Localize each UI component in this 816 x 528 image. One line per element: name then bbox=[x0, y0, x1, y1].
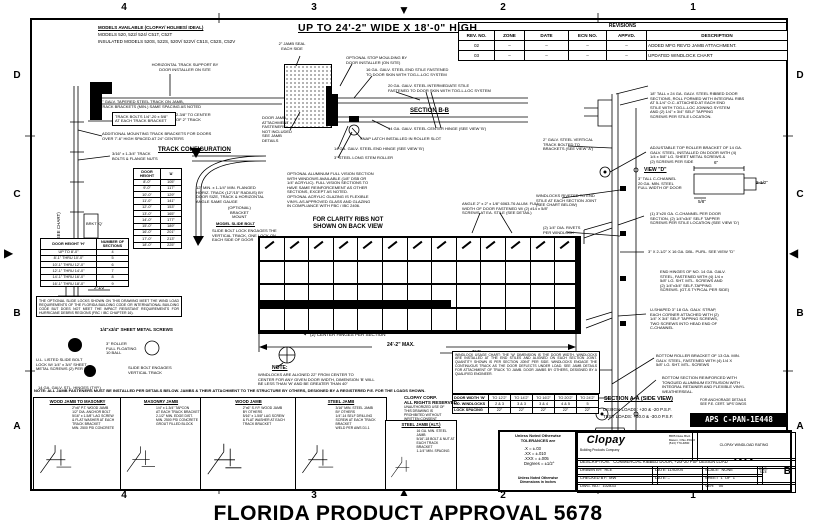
door-panel-cell bbox=[358, 309, 383, 331]
table-cell: 22" bbox=[577, 407, 599, 413]
door-panel-cell bbox=[432, 309, 457, 331]
door-panel-cell bbox=[285, 238, 310, 260]
view-d-width-dim: 6" bbox=[714, 160, 718, 165]
panel-notes: 2"x6" S.Y.P. WOOD JAMB BY OTHERS 5/16" x… bbox=[243, 407, 295, 427]
rib-mark bbox=[437, 241, 447, 249]
door-panel-cell bbox=[334, 238, 359, 260]
aa-purlin-note: 3" X 2-1/2" X 16 GA. DBL. PURL. SEE VIEW… bbox=[648, 250, 735, 255]
rib-mark bbox=[486, 241, 496, 249]
door-panel-cell bbox=[285, 262, 310, 284]
grid-row-label: A bbox=[10, 421, 24, 432]
door-panel-cell bbox=[457, 309, 482, 331]
table-header-cell: DESCRIPTION bbox=[647, 31, 788, 41]
door-panel-cell bbox=[506, 238, 531, 260]
glazing-note: OPTIONAL ALUMINUM FULL VISION SECTION WI… bbox=[287, 172, 389, 209]
bb-snap-latch-note: SNAP LATCH INSTALLED IN ROLLER SLOT bbox=[360, 137, 441, 142]
grid-row-label: D bbox=[10, 70, 24, 81]
grid-row-label: C bbox=[793, 189, 807, 200]
copyright-sub: UNAUTHORIZED USE OF THIS DRAWING IS PROH… bbox=[404, 406, 445, 422]
windload-cell: CLOPAY WINDLOAD RATING W4 bbox=[692, 432, 796, 461]
windlock-note-title: NOTE: bbox=[272, 366, 288, 372]
width-dimension: 24'-2" MAX. bbox=[385, 343, 416, 349]
tolerances-values: .X = ±.03 .XX = ±.010 .XXX = ±.005 Degre… bbox=[524, 446, 554, 466]
grid-col-label: 4 bbox=[117, 2, 131, 13]
door-panel-cell bbox=[531, 262, 556, 284]
aa-sections-note: 18" TALL x 24 GA. GALV. STEEL RIBBED DOO… bbox=[650, 92, 744, 120]
door-panel-cell bbox=[408, 238, 433, 260]
rib-mark bbox=[363, 241, 373, 249]
table-cell: – bbox=[569, 51, 607, 61]
view-d-label: VIEW "D" bbox=[644, 168, 667, 174]
revisions-table: REV. NO.ZONEDATEECN NO.APPVD.DESCRIPTION… bbox=[458, 30, 788, 61]
table-header-cell: APPVD. bbox=[607, 31, 647, 41]
rib-mark bbox=[314, 241, 324, 249]
table-cell: 22" bbox=[489, 407, 511, 413]
door-panel-cell bbox=[457, 238, 482, 260]
table-cell: – bbox=[525, 51, 569, 61]
table-cell: 22" bbox=[533, 407, 555, 413]
door-panel-cell bbox=[531, 309, 556, 331]
door-panel-cell bbox=[334, 262, 359, 284]
slide-lock-note: U.L. LISTED SLIDE BOLT LOCK W/ 1/4" x 3/… bbox=[36, 358, 95, 372]
table-cell: 22" bbox=[555, 407, 577, 413]
panel-notes: 1/4" x 1-3/4" TAPCON AT EACH TRACK BRACK… bbox=[156, 407, 200, 427]
table-header-cell: ECN NO. bbox=[569, 31, 607, 41]
rib-mark bbox=[388, 241, 398, 249]
door-panel-cell bbox=[506, 285, 531, 307]
grid-col-label: 1 bbox=[686, 2, 700, 13]
models-line: INSULATED MODELS 520S, 522S, 520V/ 522V/… bbox=[98, 39, 235, 44]
keeper-note: SLIDE BOLT ENGAGES VERTICAL TRACK bbox=[128, 366, 172, 375]
track-config-title: TRACK CONFIGURATION bbox=[158, 147, 231, 154]
table-header-cell: DOOR HEIGHT bbox=[134, 169, 161, 180]
rib-mark bbox=[338, 241, 348, 249]
bracket-dim: 2-3/8" TO CENTER OF 2" TRACK bbox=[176, 113, 211, 122]
revisions-block: REVISIONS REV. NO.ZONEDATEECN NO.APPVD.D… bbox=[458, 22, 787, 61]
door-panel-cell bbox=[432, 238, 457, 260]
lock-bar bbox=[260, 300, 451, 307]
door-panel-cell bbox=[506, 309, 531, 331]
panel-notes: 3/16" MIN. STEEL JAMB BY OTHERS 1/4"-14 … bbox=[336, 407, 386, 430]
detail-sketch bbox=[36, 431, 80, 487]
aa-bottom-seal-note: BOTTOM SECTION REINFORCED WITH TONGUED A… bbox=[662, 376, 745, 394]
version-cell: VER: 00 bbox=[702, 482, 796, 493]
company-cell: Clopay Building Products Company 8585 Du… bbox=[577, 432, 698, 461]
door-panel-cell bbox=[309, 309, 334, 331]
panel-title: STEEL JAMB bbox=[296, 399, 386, 404]
table-cell: – bbox=[495, 41, 525, 51]
door-sections-table: DOOR HEIGHT 'H'NUMBER OF SECTIONSUP TO 8… bbox=[40, 238, 129, 287]
table-cell: 225" bbox=[161, 242, 182, 248]
detail-sketch bbox=[123, 431, 163, 487]
copyright-notice: CLOPAY CORP. ALL RIGHTS RESERVED. bbox=[404, 395, 458, 405]
door-section-row bbox=[260, 238, 579, 262]
clarity-note: FOR CLARITY RIBS NOT SHOWN ON BACK VIEW bbox=[300, 217, 396, 231]
door-panel-cell bbox=[408, 262, 433, 284]
rib-mark bbox=[412, 241, 422, 249]
code-compliance-note: THE OPTIONAL SLIDE LOCKS SHOWN ON THIS D… bbox=[36, 296, 182, 317]
track-note: 2" GALV. TAPERED STEEL TRACK ON JAMB, TR… bbox=[100, 100, 201, 109]
anchorage-note: FOR ANCHORAGE DETAILS SEE P.E. CERT. 'AP… bbox=[700, 398, 746, 406]
door-panel-cell bbox=[334, 309, 359, 331]
section-bb-label: SECTION B-B bbox=[410, 108, 449, 115]
table-cell: 22" bbox=[511, 407, 533, 413]
aps-code-badge: APS C-PAN-1E448 bbox=[690, 413, 788, 427]
table-cell: ADDED MFG REV'D JAMB ATTACHMENT. bbox=[647, 41, 788, 51]
table-header-cell: ZONE bbox=[495, 31, 525, 41]
table-header-cell: NUMBER OF SECTIONS bbox=[97, 239, 129, 250]
rib-mark bbox=[535, 241, 545, 249]
left-center-marker-icon: ▶ bbox=[4, 247, 13, 259]
grid-row-label: B bbox=[10, 308, 24, 319]
grid-col-label: 4 bbox=[117, 490, 131, 501]
jamb-detail-panel: MASONRY JAMB 1/4" x 1-3/4" TAPCON AT EAC… bbox=[120, 397, 202, 490]
aa-windlock-note: WINDLOCKS RIVETED TO END STILE AT EACH S… bbox=[536, 194, 597, 208]
table-cell: – bbox=[607, 51, 647, 61]
door-panel-cell bbox=[481, 262, 506, 284]
jamb-detail-panel: WOOD JAMB TO MASONRY 2"x6" P.T. WOOD JAM… bbox=[33, 397, 122, 490]
bb-center-hinge-note: 14 GA. GALV. STEEL CENTER HINGE (SEE VIE… bbox=[388, 127, 486, 132]
bb-jamb-attach-note: DOOR JAMB ATTACHMENT FASTENERS NOT INCLU… bbox=[262, 116, 292, 144]
bb-roller-note: 3" STEEL LONG STEM ROLLER bbox=[334, 156, 393, 161]
door-panel-cell bbox=[260, 309, 285, 331]
door-panel-cell bbox=[432, 262, 457, 284]
table-cell: – bbox=[525, 41, 569, 51]
tolerances-title: Unless Noted Otherwise TOLERANCES are bbox=[500, 434, 576, 443]
rib-mark bbox=[289, 241, 299, 249]
door-panel-cell bbox=[481, 238, 506, 260]
table-cell: – bbox=[569, 41, 607, 51]
view-d-height-dim: 2-1/2" bbox=[756, 180, 768, 185]
track-bolt-note: TRACK BOLTS 1/4"-20 x 5/8" AT EACH TRACK… bbox=[112, 112, 176, 126]
door-panel-cell bbox=[408, 309, 433, 331]
door-panel-cell bbox=[457, 262, 482, 284]
section-aa-label: SECTION A-A (SIDE VIEW) bbox=[604, 396, 673, 402]
panel-title: WOOD JAMB bbox=[201, 399, 296, 404]
bracket-q-label: BRKT 'Q' bbox=[86, 222, 102, 227]
design-loads: DESIGN LOADS: +20 & -20 P.S.F. bbox=[603, 407, 672, 412]
door-panel-cell bbox=[383, 238, 408, 260]
revisions-title: REVISIONS bbox=[458, 22, 787, 30]
jamb-details-note: NOTE: ALL JAMB FASTENERS MUST BE INSTALL… bbox=[34, 389, 454, 394]
size-value: B bbox=[784, 470, 791, 475]
panel-notes: 2"x6" P.T. WOOD JAMB 1/2" DIA. ANCHOR BO… bbox=[72, 407, 120, 430]
track-config-table: DOOR HEIGHT'A'8'-0"105"9'-0"117"10'-0"12… bbox=[133, 168, 182, 249]
mounting-note: ADDITIONAL MOUNTING TRACK BRACKETS FOR D… bbox=[102, 132, 211, 141]
detail-sketch bbox=[298, 431, 342, 487]
door-panel-cell bbox=[481, 285, 506, 307]
florida-approval-title: FLORIDA PRODUCT APPROVAL 5678 bbox=[0, 502, 816, 526]
door-size-title: UP TO 24'-2" WIDE X 18'-0" HIGH bbox=[298, 26, 477, 31]
bb-stop-moulding-note: OPTIONAL STOP MOULDING BY DOOR INSTALLER… bbox=[346, 56, 407, 65]
dwg-no-cell: DWG. NO.: 102833 bbox=[577, 482, 708, 493]
table-cell: 02 bbox=[459, 41, 495, 51]
grid-row-label: C bbox=[10, 189, 24, 200]
title-block: Clopay Building Products Company 8585 Du… bbox=[575, 430, 792, 492]
door-panel-cell bbox=[481, 309, 506, 331]
models-line: MODELS 520, 522/ 524/ C51T, C52T bbox=[98, 32, 172, 37]
door-panel-cell bbox=[260, 262, 285, 284]
door-section-row bbox=[260, 262, 579, 286]
windload-label: CLOPAY WINDLOAD RATING bbox=[695, 443, 793, 448]
screws-label: 1/4"x3/4" SHEET METAL SCREWS bbox=[100, 327, 173, 332]
panel-title: MASONRY JAMB bbox=[121, 399, 201, 404]
jamb-detail-panel: STEEL JAMB (ALT.) 16 GA. MIN. STEEL JAMB… bbox=[385, 420, 457, 490]
grid-col-label: 3 bbox=[307, 2, 321, 13]
door-back-view bbox=[258, 236, 581, 334]
track-brkt-note: 3/16" x 1-3/4" TRACK BOLTS & FLANGE NUTS bbox=[112, 152, 158, 161]
aa-end-hinge-note: END HINGES OF NO. 14 GA. GALV. STEEL, FA… bbox=[660, 270, 729, 293]
door-panel-cell bbox=[457, 285, 482, 307]
optional-bracket-note: (OPTIONAL) BRACKET MOUNT bbox=[228, 206, 251, 220]
right-center-marker-icon: ◀ bbox=[789, 247, 798, 259]
view-d-flange-dim: 5/8" bbox=[698, 199, 706, 204]
tolerances-block: Unless Noted Otherwise TOLERANCES are .X… bbox=[498, 430, 578, 492]
door-panel-cell bbox=[383, 262, 408, 284]
grid-row-label: D bbox=[793, 70, 807, 81]
bb-end-hinge-note: 14 GA. GALV. STEEL END HINGE (SEE VIEW '… bbox=[334, 147, 424, 152]
table-header-cell: 'A' bbox=[161, 169, 182, 180]
table-header-cell: DOOR HEIGHT 'H' bbox=[41, 239, 97, 250]
table-cell: 03 bbox=[459, 51, 495, 61]
models-available-title: MODELS AVAILABLE (CLOPAY/ HOLMES/ IDEAL) bbox=[98, 25, 203, 30]
test-loads: TEST LOADS: +30.0 & -30.0 P.S.F. bbox=[603, 414, 673, 419]
door-panel-cell bbox=[531, 285, 556, 307]
table-cell: UPDATED WINDLOCK CHART bbox=[647, 51, 788, 61]
table-header-cell: REV. NO. bbox=[459, 31, 495, 41]
grid-col-label: 3 bbox=[307, 490, 321, 501]
door-panel-cell bbox=[531, 238, 556, 260]
panel-notes: 16 GA. MIN. STEEL JAMB 5/16"-18 BOLT & N… bbox=[417, 430, 456, 453]
windlock-chart-table: DOOR WIDTH 'W'TO 12'2"TO 14'2"TO 16'2"TO… bbox=[452, 394, 599, 414]
aa-channel-note: (1) 3"x20 GA. C-CHANNEL PER DOOR SECTION… bbox=[650, 212, 739, 226]
door-panel-cell bbox=[506, 262, 531, 284]
bb-int-stile-note: 20 GA. GALV. STEEL INTERMEDIATE STILE FA… bbox=[388, 84, 491, 93]
aa-vert-track-note: 2" GALV. STEEL VERTICAL TRACK BOLTED TO … bbox=[543, 138, 593, 152]
door-panel-cell bbox=[309, 262, 334, 284]
grid-row-label: A bbox=[793, 421, 807, 432]
bb-end-stile-note: 16 GA. GALV. STEEL END STILE FASTENED TO… bbox=[366, 68, 448, 77]
door-panel-cell bbox=[358, 262, 383, 284]
jamb-detail-panel: WOOD JAMB 2"x6" S.Y.P. WOOD JAMB BY OTHE… bbox=[200, 397, 297, 490]
door-panel-cell bbox=[309, 238, 334, 260]
door-section-row bbox=[260, 309, 579, 333]
door-panel-cell bbox=[358, 238, 383, 260]
bb-jamb-seal-label: 2" JAMB SEAL EACH SIDE bbox=[272, 42, 312, 51]
rib-mark bbox=[461, 241, 471, 249]
rib-mark bbox=[560, 241, 570, 249]
view-d-sub: 3" TALL C-CHANNEL 20 GA. MIN. STEEL FULL… bbox=[638, 177, 682, 191]
windlock-note-body: WINDLOCKS ARE ALIGNED 22" FROM CENTER TO… bbox=[258, 373, 375, 387]
door-panel-cell bbox=[383, 309, 408, 331]
table-header-cell: DATE bbox=[525, 31, 569, 41]
table-cell: 18'-0" bbox=[134, 242, 161, 248]
door-panel-cell bbox=[260, 238, 285, 260]
aa-strap-note: U-SHAPED 3" 18 GA. GALV. STRAP, EACH COR… bbox=[650, 308, 719, 331]
table-cell: – bbox=[495, 51, 525, 61]
roller-label: 3" ROLLER FULL FLOATING 10 BALL bbox=[106, 342, 136, 356]
windlock-usage-note: WINDLOCK USAGE CHART: THE 'W' DIMENSION … bbox=[452, 351, 600, 394]
jamb-detail-panel: STEEL JAMB 3/16" MIN. STEEL JAMB BY OTHE… bbox=[295, 397, 387, 490]
company-logo: Clopay bbox=[587, 434, 625, 446]
panel-title: STEEL JAMB (ALT.) bbox=[386, 422, 456, 427]
slide-bolt-title: MODEL SLIDE BOLT bbox=[216, 222, 255, 227]
detail-sketch bbox=[203, 431, 251, 487]
aa-rivet-note: (2) 1/4" DIA. RIVETS PER WINDLOCK bbox=[543, 226, 580, 235]
grid-col-label: 2 bbox=[496, 2, 510, 13]
center-hinges-label: (2) CENTER HINGES PER SECTION bbox=[310, 332, 386, 337]
horiz-track-support-note: HORIZONTAL TRACK SUPPORT BY DOOR INSTALL… bbox=[140, 63, 230, 72]
rib-mark bbox=[511, 241, 521, 249]
drawing-sheet: 4 3 2 1 4 3 2 1 D C B A D C B A ▼ ▲ ▶ ◀ … bbox=[0, 0, 816, 528]
top-center-marker-icon: ▼ bbox=[398, 4, 410, 16]
panel-title: WOOD JAMB TO MASONRY bbox=[34, 399, 121, 404]
track-radius-note: 12" MIN. x 1-1/4" MIN. FLANGED HORIZ. TR… bbox=[196, 186, 264, 204]
table-cell: 9 bbox=[97, 281, 129, 287]
tolerances-footer: Unless Noted Otherwise Dimensions in Inc… bbox=[500, 476, 576, 484]
table-cell: 16'-1" THRU 18'-0" bbox=[41, 281, 97, 287]
aa-bottom-bracket-note: BOTTOM ROLLER BRACKET OF 13 GA. MIN. GAL… bbox=[656, 354, 740, 368]
end-stile-strip bbox=[575, 238, 579, 332]
door-panel-cell bbox=[285, 309, 310, 331]
table-cell: – bbox=[607, 41, 647, 51]
aa-top-bracket-note: ADJUSTABLE TOP ROLLER BRACKET OF 14 GA. … bbox=[650, 146, 742, 164]
rib-mark bbox=[265, 241, 275, 249]
table-cell: LOCK SPACING bbox=[453, 407, 489, 413]
detail-sketch bbox=[388, 447, 420, 487]
grid-row-label: B bbox=[793, 308, 807, 319]
company-tagline: Building Products Company bbox=[580, 449, 695, 453]
